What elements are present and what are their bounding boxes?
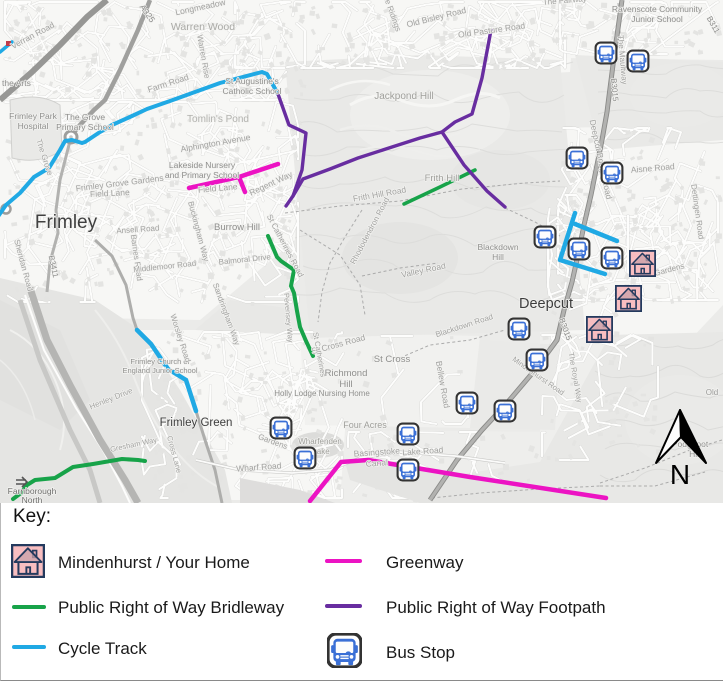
svg-text:and Primary School: and Primary School bbox=[165, 170, 239, 180]
svg-text:Wharfenden: Wharfenden bbox=[298, 437, 342, 446]
svg-text:Lakeside Nursery: Lakeside Nursery bbox=[169, 160, 236, 170]
svg-text:Frimley: Frimley bbox=[35, 212, 98, 233]
svg-text:St Cross: St Cross bbox=[374, 354, 411, 365]
svg-text:The Grove: The Grove bbox=[65, 112, 105, 122]
svg-text:Tomlin's Pond: Tomlin's Pond bbox=[187, 114, 249, 125]
svg-text:Ravenscote Community: Ravenscote Community bbox=[612, 4, 703, 14]
svg-text:Hill: Hill bbox=[492, 252, 504, 262]
svg-text:Canal: Canal bbox=[365, 457, 388, 469]
svg-text:Frimley Church of: Frimley Church of bbox=[130, 357, 190, 366]
svg-text:Junior School: Junior School bbox=[631, 14, 683, 24]
svg-text:Jackpond Hill: Jackpond Hill bbox=[374, 91, 433, 102]
svg-text:Deepcut: Deepcut bbox=[519, 296, 573, 312]
svg-text:Hospital: Hospital bbox=[18, 121, 49, 131]
svg-text:N: N bbox=[670, 459, 690, 490]
svg-text:Warren Wood: Warren Wood bbox=[171, 21, 235, 33]
svg-text:Four Acres: Four Acres bbox=[343, 420, 387, 430]
svg-text:Burrow Hill: Burrow Hill bbox=[214, 222, 260, 233]
svg-text:Richmond: Richmond bbox=[325, 368, 368, 379]
svg-text:North: North bbox=[22, 495, 43, 503]
svg-text:Frimley Park: Frimley Park bbox=[9, 111, 57, 121]
svg-text:St Augustine's: St Augustine's bbox=[225, 76, 279, 86]
svg-text:Holly Lodge Nursing Home: Holly Lodge Nursing Home bbox=[274, 389, 370, 398]
svg-text:England Junior School: England Junior School bbox=[122, 366, 197, 375]
svg-text:the Arts: the Arts bbox=[2, 78, 31, 88]
svg-text:Frimley Green: Frimley Green bbox=[160, 417, 233, 429]
svg-text:Frith Hill: Frith Hill bbox=[425, 173, 460, 184]
svg-text:Blackdown: Blackdown bbox=[477, 242, 518, 252]
svg-text:Old: Old bbox=[706, 388, 718, 397]
svg-text:Catholic School: Catholic School bbox=[222, 86, 281, 96]
svg-text:Primary School: Primary School bbox=[56, 122, 114, 132]
svg-text:Field Lane: Field Lane bbox=[90, 187, 130, 199]
